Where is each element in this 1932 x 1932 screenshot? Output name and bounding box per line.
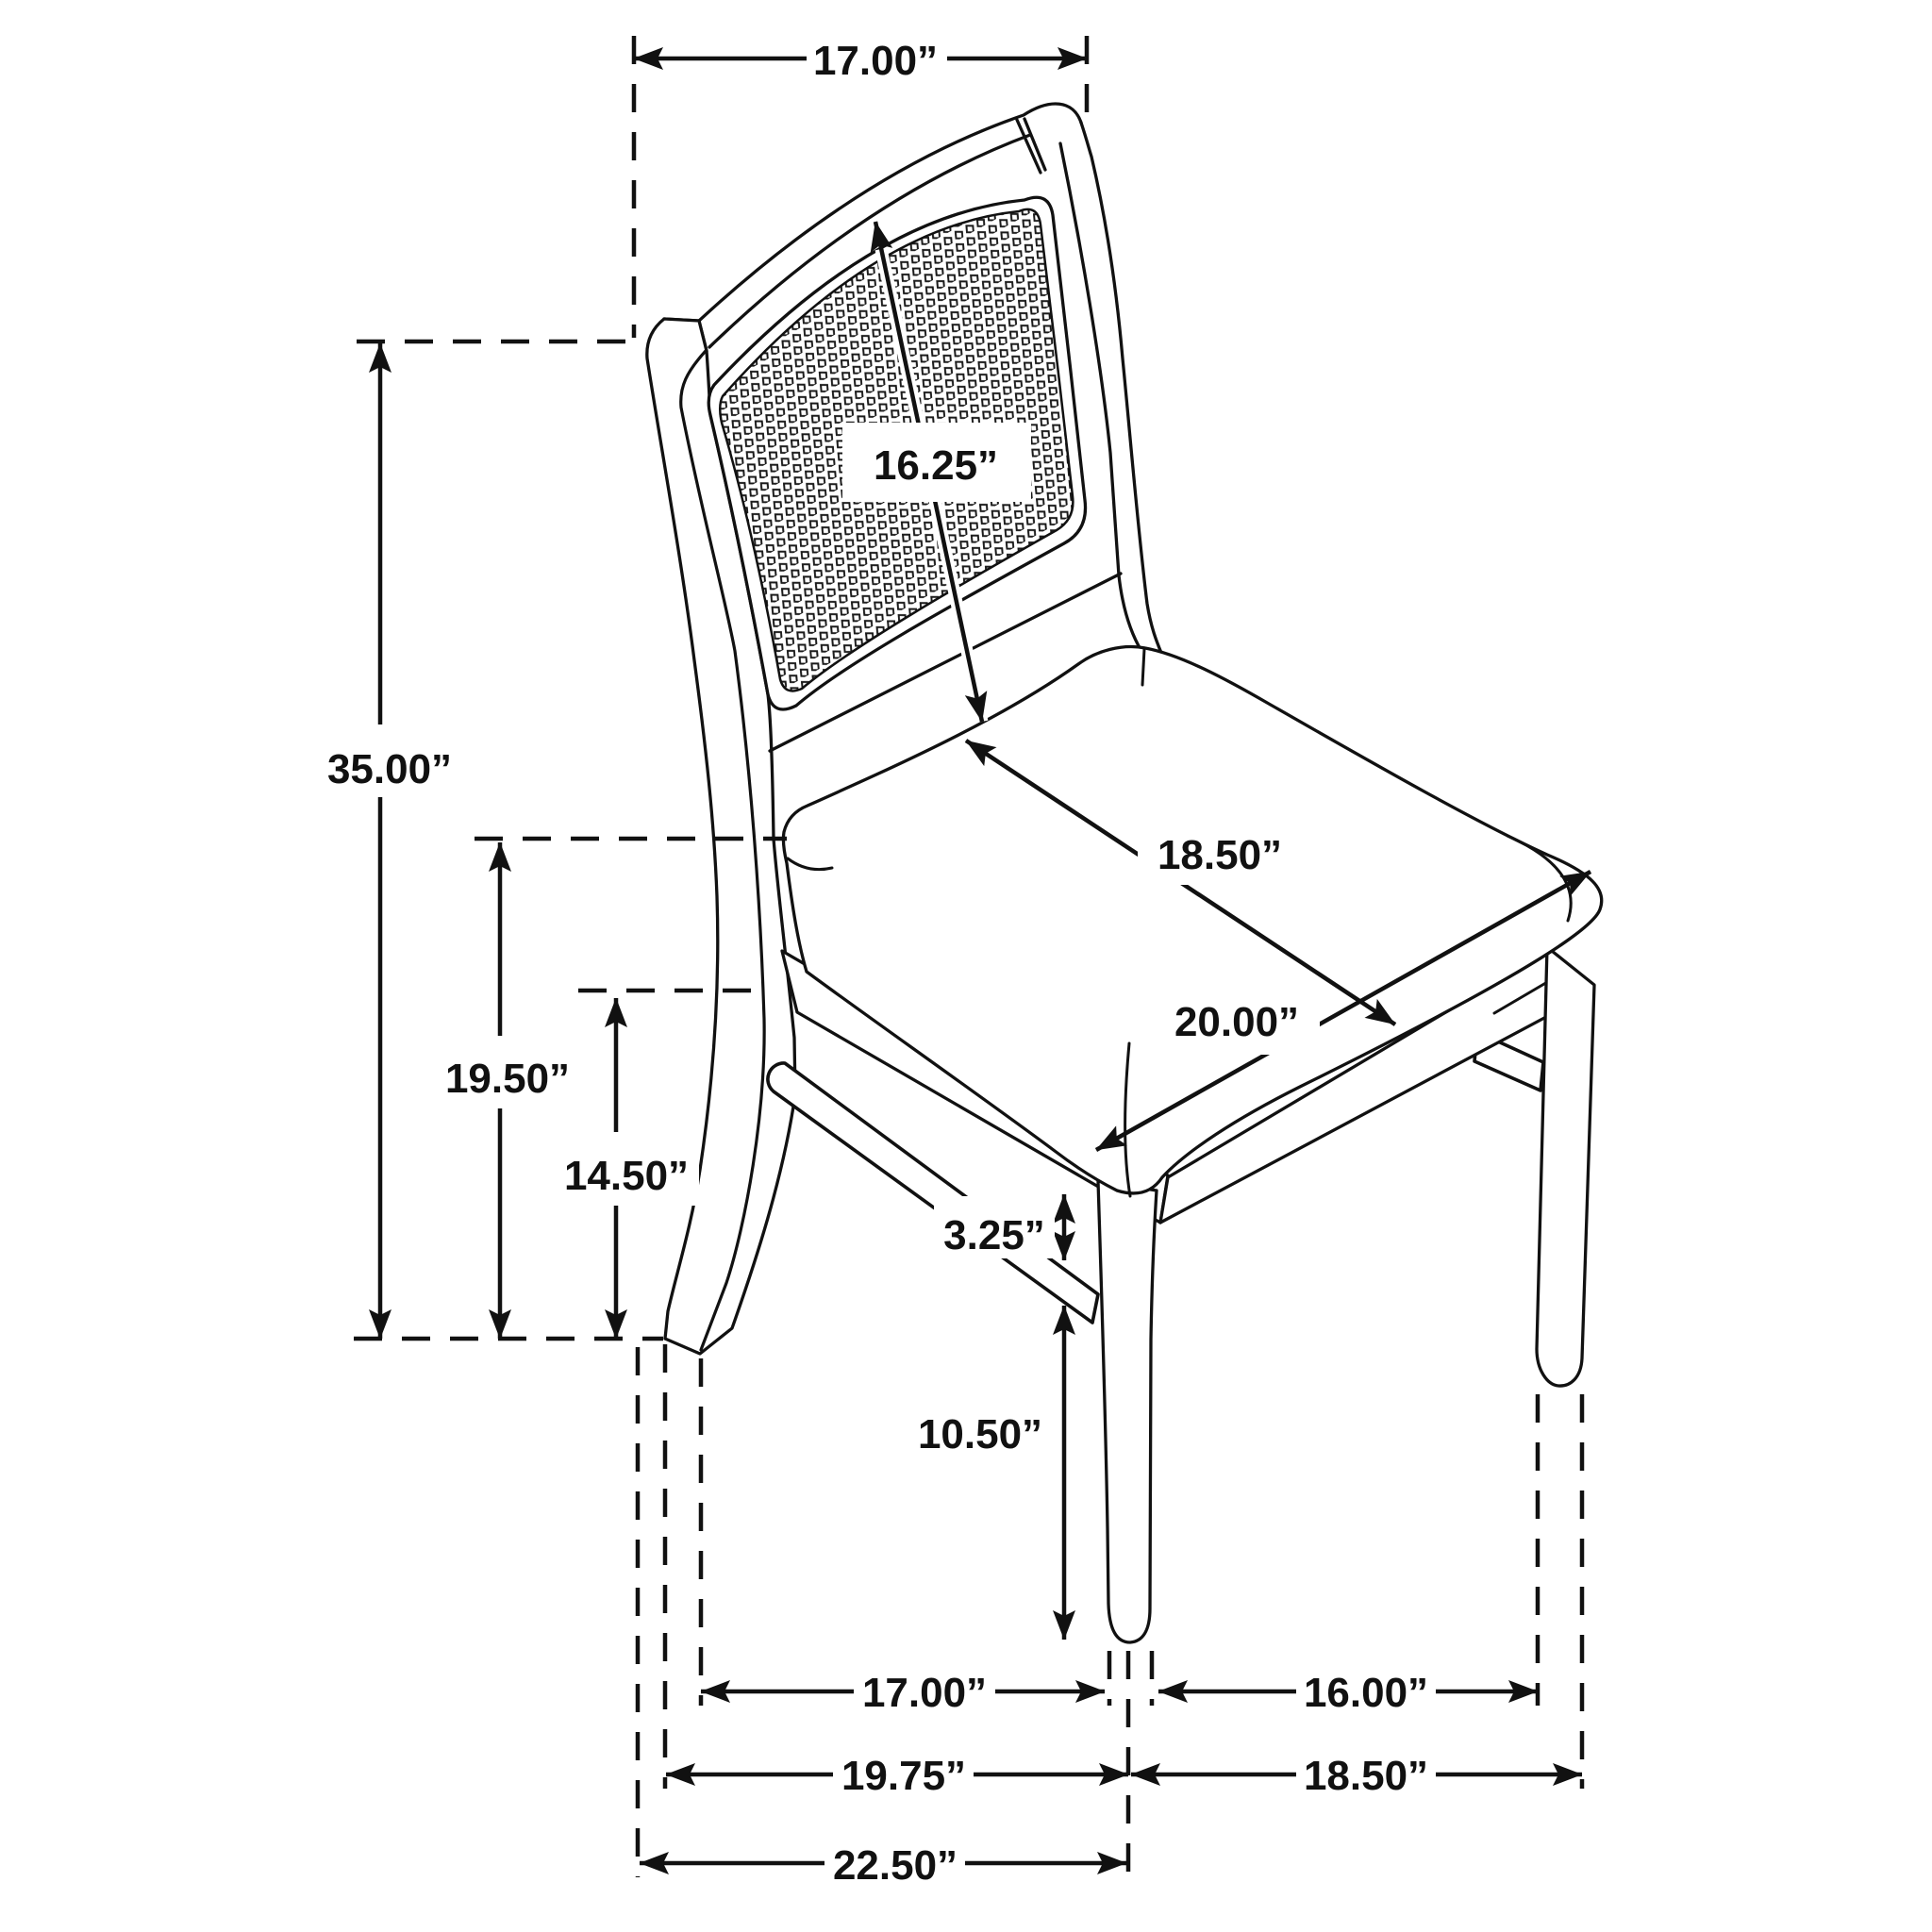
svg-text:19.50”: 19.50” xyxy=(445,1056,570,1102)
svg-text:17.00”: 17.00” xyxy=(813,38,938,84)
svg-text:22.50”: 22.50” xyxy=(833,1842,958,1889)
svg-text:20.00”: 20.00” xyxy=(1174,999,1299,1045)
svg-text:35.00”: 35.00” xyxy=(327,746,452,792)
svg-text:19.75”: 19.75” xyxy=(841,1753,966,1799)
svg-text:3.25”: 3.25” xyxy=(943,1212,1045,1258)
svg-text:14.50”: 14.50” xyxy=(564,1153,689,1199)
svg-text:16.00”: 16.00” xyxy=(1304,1670,1428,1716)
svg-text:18.50”: 18.50” xyxy=(1158,832,1282,878)
svg-text:16.25”: 16.25” xyxy=(874,442,998,489)
svg-text:10.50”: 10.50” xyxy=(918,1411,1042,1457)
svg-text:18.50”: 18.50” xyxy=(1304,1753,1428,1799)
svg-text:17.00”: 17.00” xyxy=(862,1670,987,1716)
